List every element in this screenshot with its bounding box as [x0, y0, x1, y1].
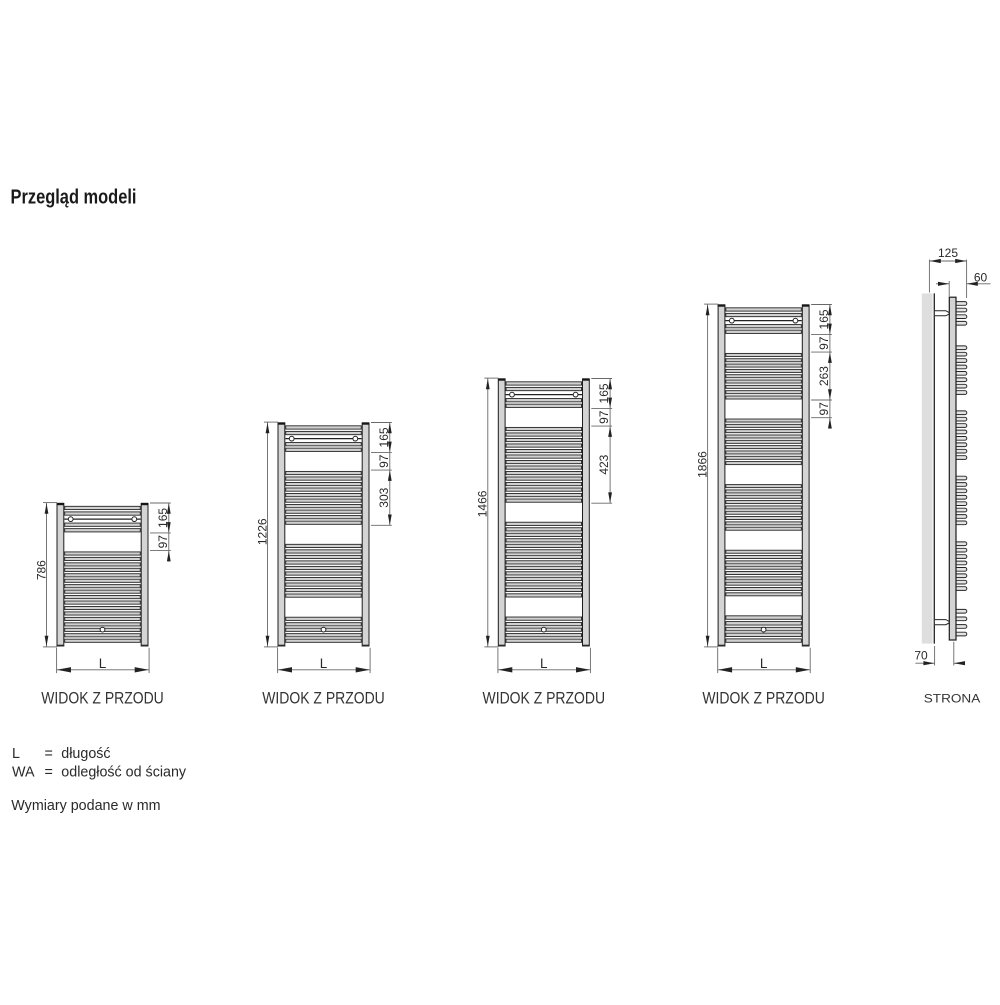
- svg-text:97: 97: [377, 454, 391, 468]
- svg-text:=: =: [45, 746, 53, 762]
- svg-text:1466: 1466: [476, 490, 490, 517]
- svg-text:WIDOK Z PRZODU: WIDOK Z PRZODU: [483, 690, 606, 708]
- svg-text:Przegląd modeli: Przegląd modeli: [11, 186, 137, 209]
- svg-text:długość: długość: [61, 746, 110, 762]
- svg-text:WIDOK Z PRZODU: WIDOK Z PRZODU: [702, 690, 825, 708]
- svg-text:97: 97: [156, 535, 170, 549]
- svg-text:=: =: [45, 765, 53, 781]
- svg-text:70: 70: [914, 649, 928, 663]
- svg-text:60: 60: [974, 270, 988, 284]
- svg-text:303: 303: [377, 487, 391, 507]
- svg-text:L: L: [99, 656, 107, 671]
- svg-text:odległość od ściany: odległość od ściany: [61, 765, 187, 781]
- svg-text:1226: 1226: [255, 518, 269, 545]
- svg-text:STRONA: STRONA: [924, 692, 981, 706]
- svg-text:WIDOK Z PRZODU: WIDOK Z PRZODU: [262, 690, 385, 708]
- svg-text:97: 97: [597, 410, 611, 424]
- svg-text:Wymiary podane w mm: Wymiary podane w mm: [11, 798, 160, 814]
- svg-text:423: 423: [597, 454, 611, 474]
- svg-text:263: 263: [817, 366, 831, 386]
- svg-text:L: L: [12, 746, 20, 762]
- svg-text:97: 97: [817, 402, 831, 416]
- svg-text:L: L: [320, 656, 328, 671]
- svg-text:125: 125: [938, 246, 958, 260]
- svg-text:L: L: [540, 656, 548, 671]
- svg-text:WA: WA: [12, 765, 35, 781]
- svg-text:L: L: [760, 656, 768, 671]
- svg-text:786: 786: [34, 560, 48, 580]
- svg-text:1866: 1866: [695, 451, 709, 478]
- svg-text:97: 97: [817, 336, 831, 350]
- svg-text:WIDOK Z PRZODU: WIDOK Z PRZODU: [41, 690, 164, 708]
